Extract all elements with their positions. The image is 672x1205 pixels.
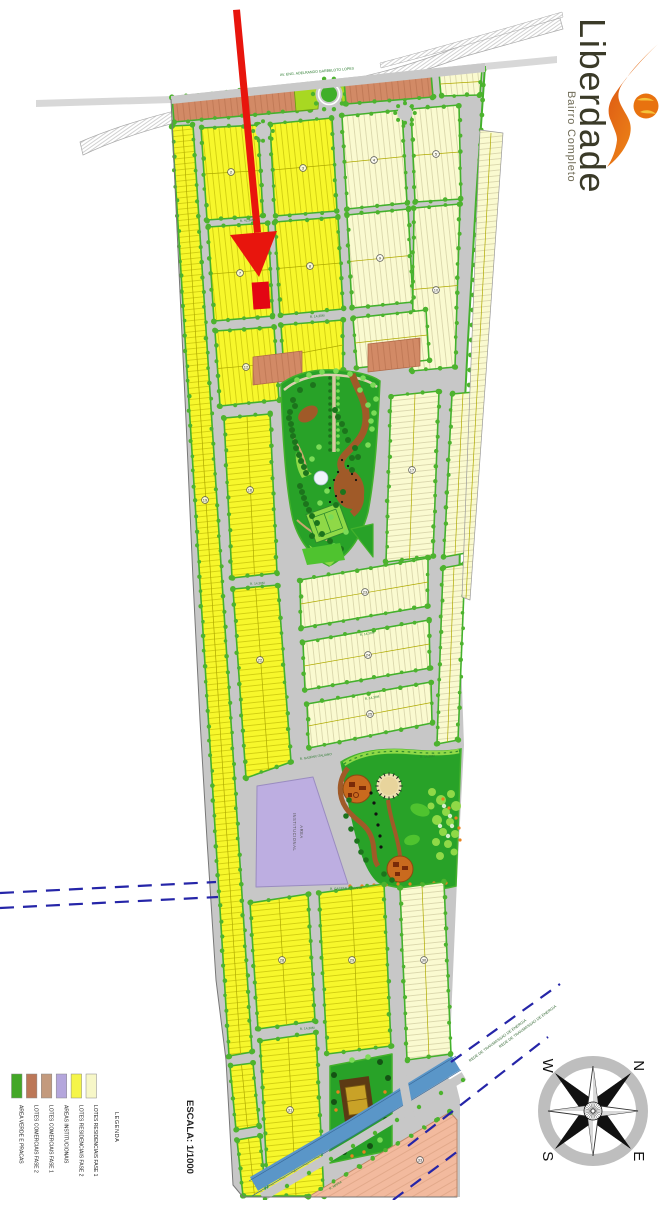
- svg-text:24: 24: [366, 653, 371, 658]
- svg-text:30: 30: [422, 958, 427, 963]
- svg-text:ESCALA: 1/1000: ESCALA: 1/1000: [184, 1100, 195, 1174]
- svg-text:AREA VERDE E PRACAS: AREA VERDE E PRACAS: [18, 1105, 24, 1164]
- svg-text:16: 16: [248, 488, 253, 493]
- svg-text:17: 17: [410, 468, 415, 473]
- svg-text:19: 19: [203, 498, 208, 503]
- svg-text:33: 33: [418, 1158, 423, 1163]
- svg-text:LOTES COMERCIAIS FASE 1: LOTES COMERCIAIS FASE 1: [48, 1105, 54, 1173]
- svg-text:23: 23: [363, 590, 368, 595]
- svg-text:Bairro Completo: Bairro Completo: [565, 91, 577, 182]
- svg-text:29: 29: [350, 958, 355, 963]
- svg-text:Liberdade: Liberdade: [572, 18, 613, 194]
- svg-text:31: 31: [288, 1108, 293, 1113]
- svg-text:INSTITUCIONAL: INSTITUCIONAL: [292, 813, 297, 852]
- svg-text:25: 25: [368, 712, 373, 717]
- svg-text:12: 12: [244, 365, 249, 370]
- svg-text:LEGENDA: LEGENDA: [113, 1112, 119, 1143]
- svg-text:LOTES COMERCIAIS FASE 2: LOTES COMERCIAIS FASE 2: [33, 1105, 39, 1173]
- svg-text:LOTES RESIDENCIAIS FASE 1: LOTES RESIDENCIAIS FASE 1: [92, 1105, 98, 1177]
- svg-text:LOTES RESIDENCIAIS FASE 2: LOTES RESIDENCIAIS FASE 2: [77, 1105, 83, 1177]
- svg-text:W: W: [539, 1059, 556, 1074]
- svg-text:28: 28: [280, 958, 285, 963]
- svg-text:E: E: [630, 1151, 647, 1161]
- svg-text:AREAS INSTITUCIONAIS: AREAS INSTITUCIONAIS: [62, 1105, 68, 1164]
- svg-text:22: 22: [258, 658, 263, 663]
- svg-text:AREA: AREA: [299, 825, 304, 838]
- svg-text:10: 10: [434, 288, 439, 293]
- svg-text:N: N: [630, 1060, 647, 1071]
- svg-text:S: S: [539, 1151, 556, 1161]
